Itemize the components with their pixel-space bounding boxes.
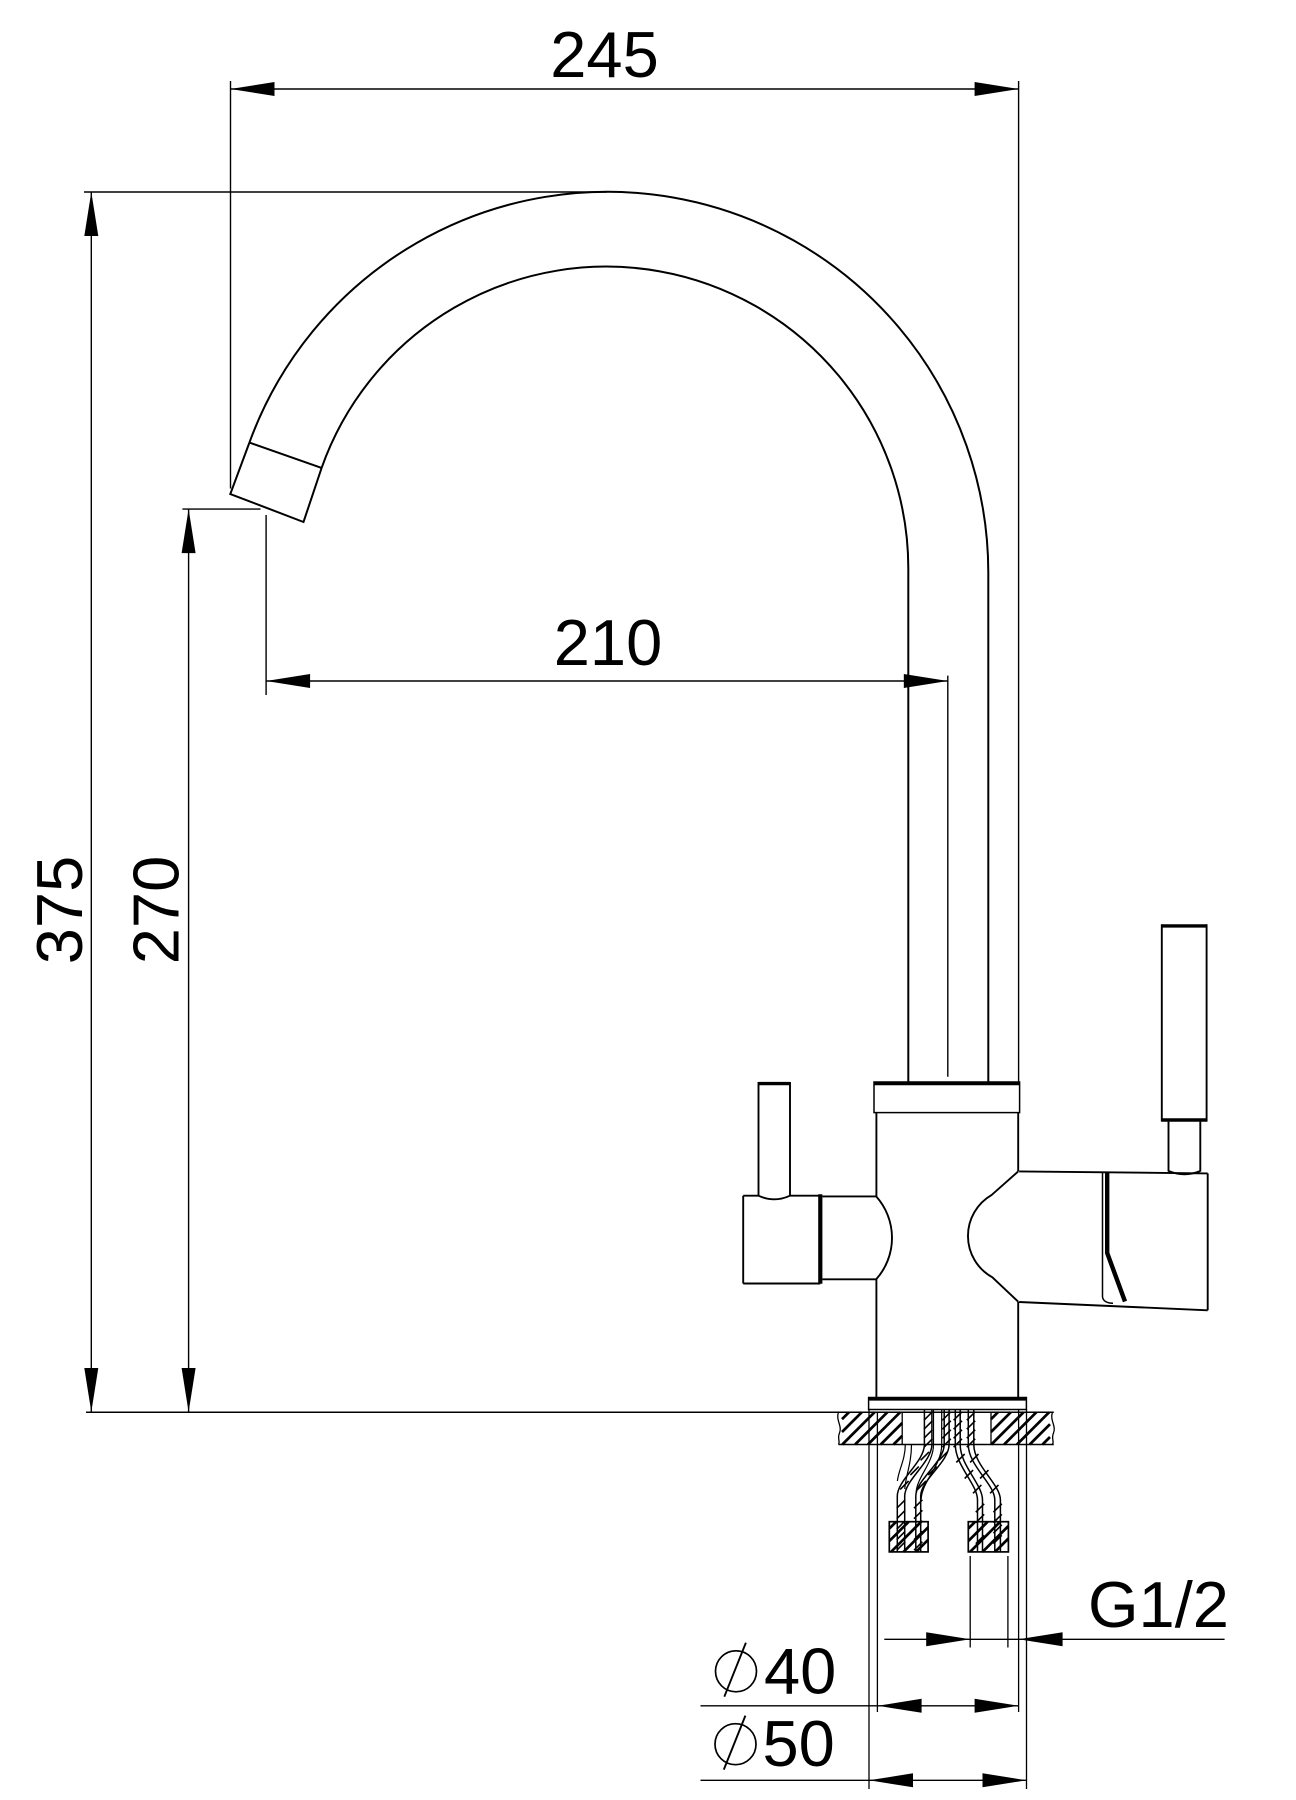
svg-text:375: 375	[23, 856, 96, 964]
svg-text:40: 40	[764, 1634, 836, 1707]
svg-text:245: 245	[550, 18, 658, 91]
svg-text:50: 50	[763, 1707, 835, 1780]
svg-text:G1/2: G1/2	[1088, 1568, 1229, 1641]
svg-text:270: 270	[120, 856, 193, 964]
svg-text:210: 210	[554, 606, 662, 679]
